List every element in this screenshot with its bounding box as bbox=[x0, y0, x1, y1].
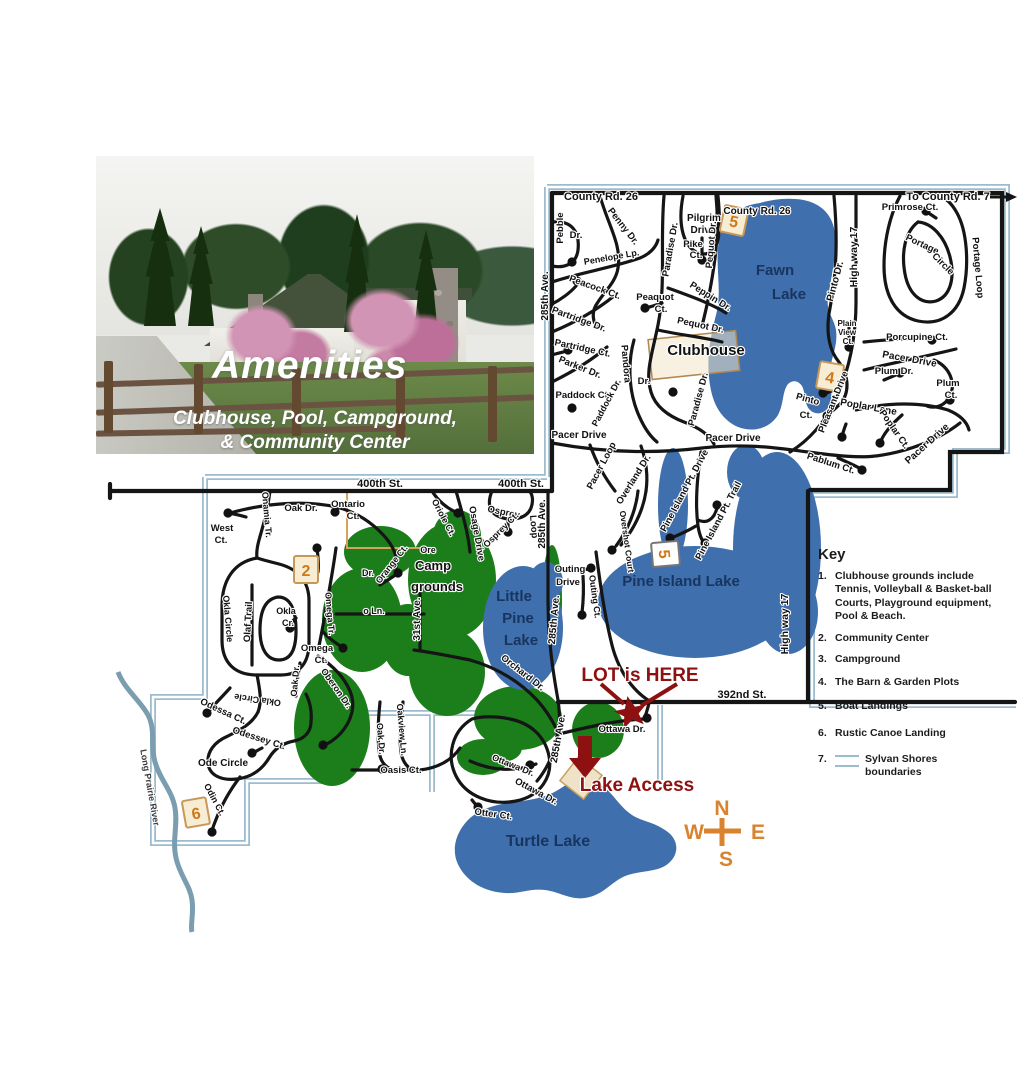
annotation-label: Lake Access bbox=[580, 775, 694, 796]
street-label: Pacer Drive bbox=[551, 430, 606, 441]
community-map-page: 54526 County Rd. 26To County Rd. 7County… bbox=[0, 0, 1025, 1088]
key-item-6: 6. Rustic Canoe Landing bbox=[818, 727, 1008, 740]
street-label: Okla Circle bbox=[234, 692, 282, 708]
street-label: Ct. bbox=[215, 535, 228, 546]
map-marker-2: 2 bbox=[294, 556, 318, 583]
street-label: Ct. bbox=[655, 304, 668, 315]
street-label: Primrose Ct. bbox=[882, 202, 939, 213]
compass-icon bbox=[704, 818, 741, 846]
street-label: 400th St. bbox=[498, 478, 544, 490]
street-label: Oak Dr. bbox=[375, 723, 388, 755]
street-label: Oasis Ct. bbox=[380, 765, 421, 776]
street-label: Ct. bbox=[843, 337, 854, 346]
street-label: Pandora bbox=[618, 344, 632, 384]
street-label: grounds bbox=[411, 579, 463, 594]
street-label: West bbox=[211, 523, 234, 534]
lake-label: Pine Island Lake bbox=[622, 573, 740, 590]
street-label: Clubhouse bbox=[667, 342, 745, 359]
street-label: Ore bbox=[420, 545, 436, 555]
street-label: Peaquot bbox=[636, 292, 674, 303]
street-label: Paradise Dr. bbox=[686, 371, 711, 427]
street-label: View bbox=[838, 328, 857, 337]
street-label: Dr. bbox=[362, 568, 374, 578]
photo-title: Amenities bbox=[212, 346, 407, 385]
lake-label: Pine bbox=[502, 610, 534, 627]
key-item-2: 2. Community Center bbox=[818, 632, 1008, 645]
lake-label: Lake bbox=[504, 632, 538, 649]
street-label: 31st Ave. bbox=[412, 597, 423, 640]
street-label: Pebble bbox=[555, 212, 566, 243]
key-item-7: 7. Sylvan Shores boundaries bbox=[818, 753, 1008, 780]
street-label: Drive bbox=[556, 577, 580, 588]
street-label: Olaf Trail bbox=[242, 601, 255, 642]
marker-number: 5 bbox=[655, 549, 673, 559]
key-item-4: 4. The Barn & Garden Plots bbox=[818, 676, 1008, 689]
photo-subtitle-2: & Community Center bbox=[96, 432, 534, 454]
street-label: Dr. bbox=[638, 376, 651, 387]
street-label: 285th Ave. bbox=[540, 271, 551, 321]
street-label: Dr. bbox=[570, 230, 583, 241]
street-label: Plum Dr. bbox=[875, 366, 914, 377]
street-label: Pike bbox=[683, 239, 703, 250]
annotation-label: LOT is HERE bbox=[581, 665, 698, 686]
street-label: High way 17 bbox=[848, 227, 860, 288]
street-label: E bbox=[751, 821, 765, 844]
street-label: Portage Loop bbox=[969, 237, 985, 299]
street-label: Long Prairie River bbox=[138, 748, 161, 827]
lake-label: Turtle Lake bbox=[506, 833, 590, 850]
street-label: 392nd St. bbox=[718, 689, 767, 701]
street-label: Omega bbox=[301, 643, 334, 654]
street-label: 400th St. bbox=[357, 478, 403, 490]
street-label: Plain bbox=[837, 319, 856, 328]
street-label: Ct. bbox=[347, 511, 360, 522]
street-label: Camp bbox=[415, 558, 451, 573]
key-item-1: 1. Clubhouse grounds include Tennis, Vol… bbox=[818, 570, 1008, 624]
photo-subtitle-1: Clubhouse, Pool, Campground, bbox=[96, 408, 534, 430]
street-label: Oak Dr. bbox=[289, 665, 302, 697]
street-label: o Ln. bbox=[363, 606, 385, 616]
lake-label: Fawn bbox=[756, 262, 794, 279]
street-label: Ct. bbox=[945, 390, 958, 401]
street-label: Oak Dr. bbox=[284, 503, 317, 514]
street-label: Ct. bbox=[315, 655, 328, 666]
street-label: Plum bbox=[936, 378, 959, 389]
key-item-5: 5. Boat Landings bbox=[818, 700, 1008, 713]
street-label: Ct. bbox=[690, 250, 703, 261]
street-label: County Rd. 26 bbox=[723, 206, 791, 217]
street-label: S bbox=[719, 848, 733, 871]
lake-label: Little bbox=[496, 588, 532, 605]
street-label: High way 17 bbox=[779, 594, 791, 655]
street-label: Outing bbox=[555, 564, 586, 575]
map-marker-6: 6 bbox=[182, 797, 210, 828]
key-item-3: 3. Campground bbox=[818, 653, 1008, 666]
street-label: Okla bbox=[276, 606, 297, 616]
street-label: County Rd. 26 bbox=[564, 191, 638, 203]
street-label: Ottawa Dr. bbox=[599, 724, 646, 735]
lake-label: Lake bbox=[772, 286, 806, 303]
map-marker-5: 5 bbox=[651, 541, 680, 567]
street-label: Pacer Drive bbox=[705, 433, 760, 444]
street-label: Ct. bbox=[800, 410, 813, 421]
street-label: Ode Circle bbox=[198, 758, 248, 769]
street-label: Penelope Lp. bbox=[583, 247, 640, 267]
street-label: Porcupine Ct. bbox=[886, 332, 948, 343]
fence-post bbox=[488, 366, 497, 442]
marker-number: 2 bbox=[302, 563, 311, 580]
street-label: W bbox=[684, 821, 704, 844]
boundary-swatch bbox=[835, 755, 859, 767]
street-label: 285th Ave. bbox=[537, 499, 548, 549]
street-label: N bbox=[714, 797, 729, 820]
map-key: Key 1. Clubhouse grounds include Tennis,… bbox=[818, 546, 1008, 780]
street-label: Ontario bbox=[331, 499, 365, 510]
street-label: Paddock Dr. bbox=[590, 377, 623, 428]
key-title: Key bbox=[818, 546, 1008, 563]
street-label: Cr. bbox=[282, 618, 294, 628]
amenities-photo: Amenities Clubhouse, Pool, Campground, &… bbox=[96, 156, 534, 454]
